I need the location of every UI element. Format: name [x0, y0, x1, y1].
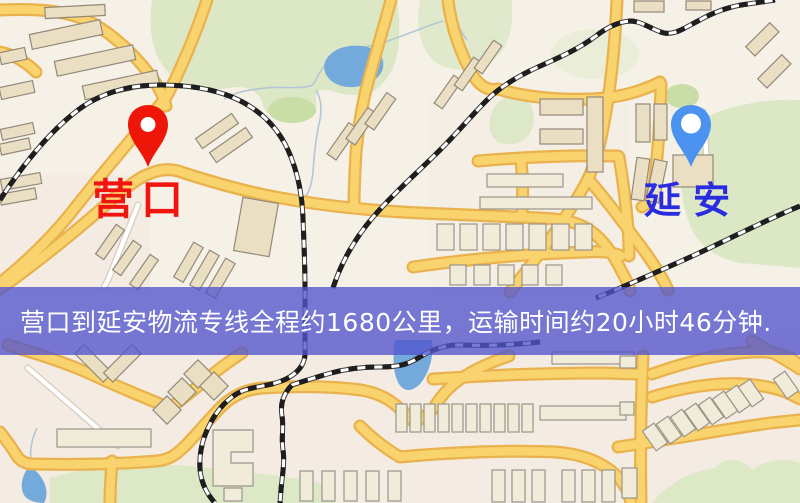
route-info-text: 营口到延安物流专线全程约1680公里，运输时间约20小时46分钟.: [20, 303, 772, 339]
map-view: 营口 延安 营口到延安物流专线全程约1680公里，运输时间约20小时46分钟.: [0, 0, 800, 503]
destination-city-label: 延安: [644, 182, 742, 219]
map-canvas: [0, 0, 800, 503]
route-info-banner: 营口到延安物流专线全程约1680公里，运输时间约20小时46分钟.: [0, 287, 800, 355]
red-map-pin-icon: [126, 103, 170, 169]
origin-city-label: 营口: [92, 179, 190, 221]
blue-map-pin-icon: [669, 103, 713, 169]
